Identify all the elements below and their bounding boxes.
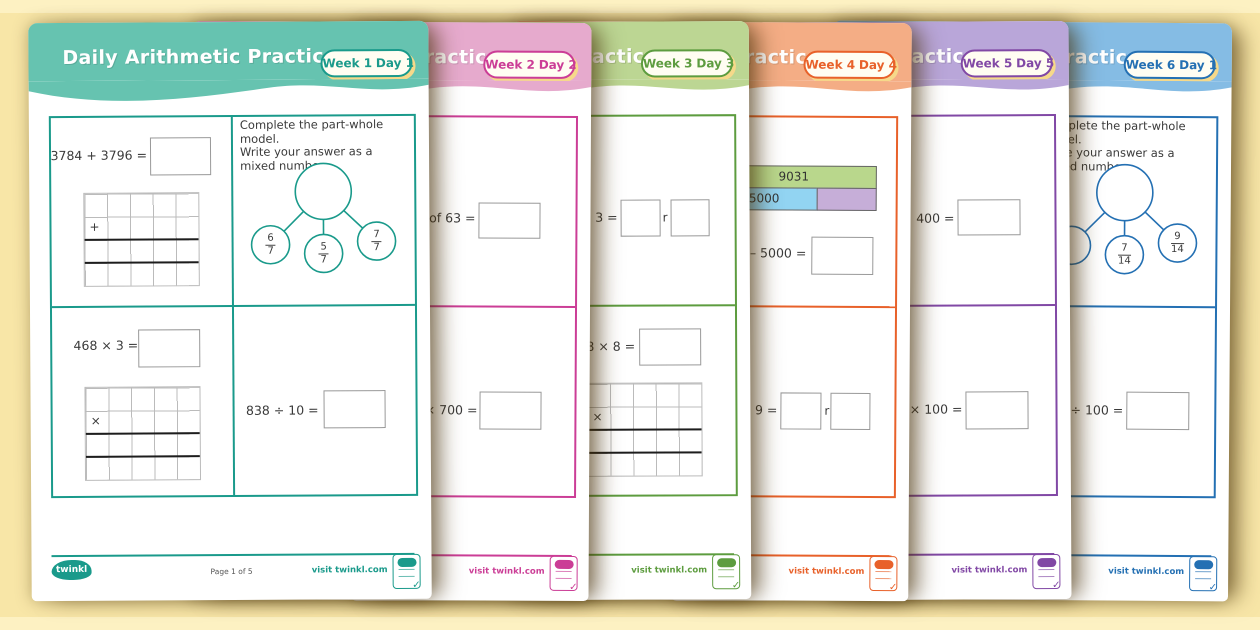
background-strip-bottom [0, 617, 1260, 630]
day-label: Day 1 [1179, 58, 1217, 72]
twinkl-quality-stamp: ✓ [712, 554, 740, 589]
whole-circle [1097, 164, 1153, 220]
answer-box[interactable] [957, 199, 1020, 235]
answer-box[interactable] [811, 237, 873, 275]
operator-symbol: × [91, 414, 101, 428]
stamp-text-lines [1038, 569, 1054, 577]
fraction: 77 [371, 229, 382, 253]
answer-box[interactable] [639, 328, 701, 365]
day-label: Day 2 [539, 58, 577, 72]
twinkl-quality-stamp: ✓ [1189, 556, 1217, 591]
answer-box[interactable] [965, 391, 1028, 429]
bar-part-unknown[interactable] [817, 188, 877, 211]
day-label: Day 5 [1016, 56, 1054, 70]
answer-box[interactable] [138, 329, 200, 367]
week-label: Week 1 [322, 56, 372, 70]
operator-symbol: × [592, 410, 602, 424]
question-text-multiplication: 468 × 3 = [73, 339, 138, 353]
stamp-text-lines [875, 571, 891, 579]
fraction: 67 [265, 233, 276, 257]
remainder-box[interactable] [830, 393, 870, 430]
instruction-line: Complete the part-whole model. [240, 118, 410, 146]
week-label: Week 3 [643, 56, 693, 70]
background-strip-top [0, 0, 1260, 13]
twinkl-quality-stamp: ✓ [869, 556, 897, 591]
week-day-badge: Week 5 Day 5 [961, 49, 1053, 77]
stamp-checkmark-icon: ✓ [569, 582, 577, 593]
whole-circle [295, 163, 351, 219]
answer-box[interactable] [621, 200, 661, 237]
header-wave [29, 79, 429, 111]
stamp-checkmark-icon: ✓ [1052, 580, 1060, 591]
answer-box[interactable] [150, 137, 211, 175]
stamp-checkmark-icon: ✓ [1209, 582, 1217, 593]
twinkl-cloud-icon [397, 558, 416, 567]
week-day-badge: Week 2 Day 2 [483, 50, 575, 78]
canvas-background: Daily Arithmetic Practice Week 6 Day 1 C… [0, 0, 1260, 630]
stamp-checkmark-icon: ✓ [412, 580, 420, 591]
answer-box[interactable] [323, 390, 385, 428]
remainder-label: r [663, 210, 668, 224]
week-label: Week 5 [963, 56, 1013, 70]
question-text: × 700 = [425, 403, 478, 417]
stamp-text-lines [718, 569, 734, 577]
twinkl-cloud-icon [717, 558, 736, 567]
answer-box[interactable] [780, 392, 821, 429]
visit-link: visit twinkl.com [469, 566, 545, 576]
twinkl-quality-stamp: ✓ [392, 554, 420, 589]
worksheet-page-week1-day1: Daily Arithmetic Practice Week 1 Day 1 3… [28, 21, 432, 601]
operator-symbol: + [89, 220, 99, 234]
stamp-checkmark-icon: ✓ [889, 582, 897, 593]
fraction: 57 [318, 241, 329, 265]
week-day-badge: Week 4 Day 4 [803, 51, 895, 80]
question-text-addition: 3784 + 3796 = [51, 149, 148, 164]
week-day-badge: Week 3 Day 3 [641, 49, 733, 77]
page-title: Daily Arithmetic Practice [62, 45, 337, 69]
week-day-badge: Week 6 Day 1 [1124, 51, 1216, 80]
twinkl-quality-stamp: ✓ [1032, 554, 1060, 589]
visit-link: visit twinkl.com [951, 565, 1027, 575]
week-label: Week 4 [805, 58, 855, 72]
question-text-division: 838 ÷ 10 = [246, 403, 319, 417]
question-text: of 63 = [429, 211, 475, 225]
answer-box[interactable] [479, 391, 541, 429]
footer-line [51, 553, 414, 557]
column-calculation-grid[interactable]: × [84, 386, 201, 481]
page-header: Daily Arithmetic Practice Week 1 Day 1 [28, 21, 428, 81]
stamp-text-lines [399, 569, 415, 577]
stamp-checkmark-icon: ✓ [732, 580, 740, 591]
day-label: Day 3 [696, 56, 734, 70]
twinkl-cloud-icon [874, 560, 893, 569]
column-calculation-grid[interactable]: + [83, 192, 200, 287]
twinkl-cloud-icon [554, 560, 573, 569]
stamp-text-lines [1195, 571, 1211, 579]
day-label: Day 4 [859, 58, 897, 72]
remainder-label: r [824, 404, 829, 418]
week-label: Week 6 [1126, 58, 1176, 72]
twinkl-cloud-icon [1194, 560, 1213, 569]
answer-box[interactable] [478, 202, 540, 238]
visit-link: visit twinkl.com [789, 566, 865, 576]
column-calculation-grid[interactable]: × [586, 382, 702, 477]
visit-link: visit twinkl.com [1108, 567, 1184, 578]
fraction: 714 [1118, 243, 1131, 267]
day-label: Day 1 [376, 56, 414, 70]
visit-link: visit twinkl.com [312, 565, 388, 575]
remainder-box[interactable] [671, 199, 710, 236]
visit-link: visit twinkl.com [631, 565, 707, 575]
week-label: Week 2 [485, 57, 535, 71]
twinkl-quality-stamp: ✓ [550, 556, 578, 591]
answer-box[interactable] [1126, 392, 1189, 430]
twinkl-cloud-icon [1037, 558, 1056, 567]
week-day-badge: Week 1 Day 1 [320, 49, 412, 78]
stamp-text-lines [556, 571, 572, 579]
fraction: 914 [1171, 231, 1184, 255]
